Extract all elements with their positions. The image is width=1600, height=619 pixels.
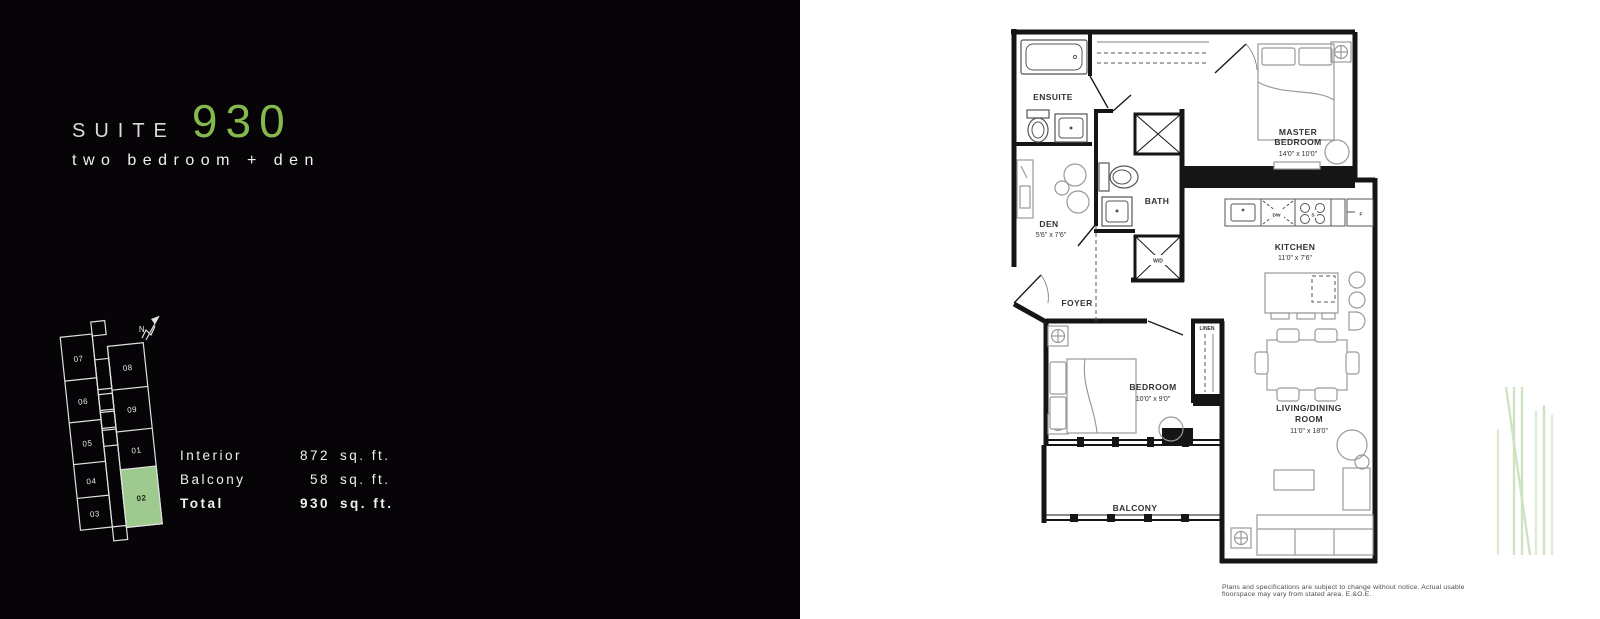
kitchen-island <box>1265 273 1338 319</box>
stat-label: Balcony <box>180 468 288 492</box>
area-stats: Interior 872 sq. ft. Balcony 58 sq. ft. … <box>180 444 410 516</box>
linen-closet <box>1205 334 1213 392</box>
doors <box>1014 44 1257 335</box>
bedroom-bed <box>1050 359 1136 433</box>
wd-label: W/D <box>1153 259 1163 265</box>
keyplan-unit-08: 08 <box>122 363 133 373</box>
room-label-living-2: ROOM <box>1295 414 1323 424</box>
suite-subtitle: two bedroom + den <box>72 152 320 170</box>
room-label-bedroom: BEDROOM <box>1129 382 1176 392</box>
room-label-master-1: MASTER <box>1279 127 1317 137</box>
left-panel: SUITE 930 two bedroom + den N <box>0 0 800 619</box>
north-label: N <box>139 325 145 334</box>
stat-unit: sq. ft. <box>340 444 410 468</box>
grass-decoration <box>1478 385 1578 557</box>
kitchen-counter: DW S <box>1225 199 1345 226</box>
room-label-ensuite: ENSUITE <box>1033 92 1073 102</box>
room-label-linen: LINEN <box>1200 326 1215 332</box>
fridge-label: F <box>1360 212 1363 218</box>
stat-label: Interior <box>180 444 288 468</box>
stat-unit: sq. ft. <box>340 492 410 516</box>
disclaimer-text: Plans and specifications are subject to … <box>1222 584 1482 598</box>
suite-number: 930 <box>192 94 293 148</box>
stat-value: 930 <box>288 492 340 516</box>
den-desk <box>1017 160 1033 218</box>
room-dim-den: 5'6" x 7'6" <box>1036 232 1067 239</box>
room-label-kitchen: KITCHEN <box>1275 242 1316 252</box>
stat-value: 58 <box>288 468 340 492</box>
keyplan-unit-05: 05 <box>82 439 93 449</box>
bath-sink <box>1102 197 1132 226</box>
keyplan-unit-01: 01 <box>131 445 142 455</box>
stat-unit: sq. ft. <box>340 468 410 492</box>
room-label-living-1: LIVING/DINING <box>1276 403 1342 413</box>
room-label-den: DEN <box>1039 219 1058 229</box>
master-closet <box>1097 42 1209 63</box>
keyplan-unit-04: 04 <box>86 476 97 486</box>
dishwasher-label: DW <box>1273 213 1281 219</box>
room-label-master-2: BEDROOM <box>1274 137 1321 147</box>
room-label-bath: BATH <box>1145 196 1170 206</box>
side-table <box>1343 468 1370 510</box>
stat-row-balcony: Balcony 58 sq. ft. <box>180 468 410 492</box>
stove: S <box>1301 204 1325 224</box>
keyplan-unit-02: 02 <box>136 493 147 503</box>
keyplan-unit-09: 09 <box>127 405 138 415</box>
sofa <box>1257 515 1373 555</box>
ensuite-bathtub <box>1021 40 1087 74</box>
keyplan: N 07 06 05 04 <box>56 298 178 546</box>
master-bed <box>1258 44 1334 140</box>
stat-value: 872 <box>288 444 340 468</box>
suite-label: SUITE <box>72 120 176 143</box>
ensuite-sink <box>1055 114 1087 142</box>
keyplan-unit-06: 06 <box>78 397 89 407</box>
keyplan-unit-03: 03 <box>89 509 100 519</box>
kitchen-sink <box>1231 204 1255 221</box>
north-arrow-icon: N <box>139 316 159 340</box>
shower <box>1135 114 1181 154</box>
ensuite-toilet <box>1027 110 1049 142</box>
room-dim-kitchen: 11'0" x 7'6" <box>1278 255 1312 262</box>
armchair <box>1337 430 1369 469</box>
keyplan-building: 07 06 05 04 03 08 09 01 02 <box>59 317 164 544</box>
island-stools <box>1349 272 1365 330</box>
coffee-table <box>1274 470 1314 490</box>
suite-title-block: SUITE 930 two bedroom + den <box>72 94 320 170</box>
master-bench <box>1274 162 1320 169</box>
keyplan-unit-07: 07 <box>73 354 84 364</box>
bath-toilet <box>1099 163 1138 191</box>
dining-table <box>1255 329 1359 401</box>
fridge: F <box>1347 199 1373 226</box>
master-chair <box>1325 140 1349 164</box>
room-dim-master: 14'0" x 10'0" <box>1279 151 1318 158</box>
room-label-balcony: BALCONY <box>1113 503 1158 513</box>
floor-plan: W/D <box>985 18 1380 567</box>
dishwasher: DW <box>1263 201 1293 224</box>
stat-row-interior: Interior 872 sq. ft. <box>180 444 410 468</box>
den-chairs <box>1055 164 1089 213</box>
room-dim-living: 11'0" x 18'0" <box>1290 428 1328 435</box>
stat-row-total: Total 930 sq. ft. <box>180 492 410 516</box>
room-dim-bedroom: 10'0" x 9'0" <box>1136 396 1171 403</box>
washer-dryer: W/D <box>1135 236 1181 280</box>
stat-label: Total <box>180 492 288 516</box>
room-label-foyer: FOYER <box>1061 298 1092 308</box>
